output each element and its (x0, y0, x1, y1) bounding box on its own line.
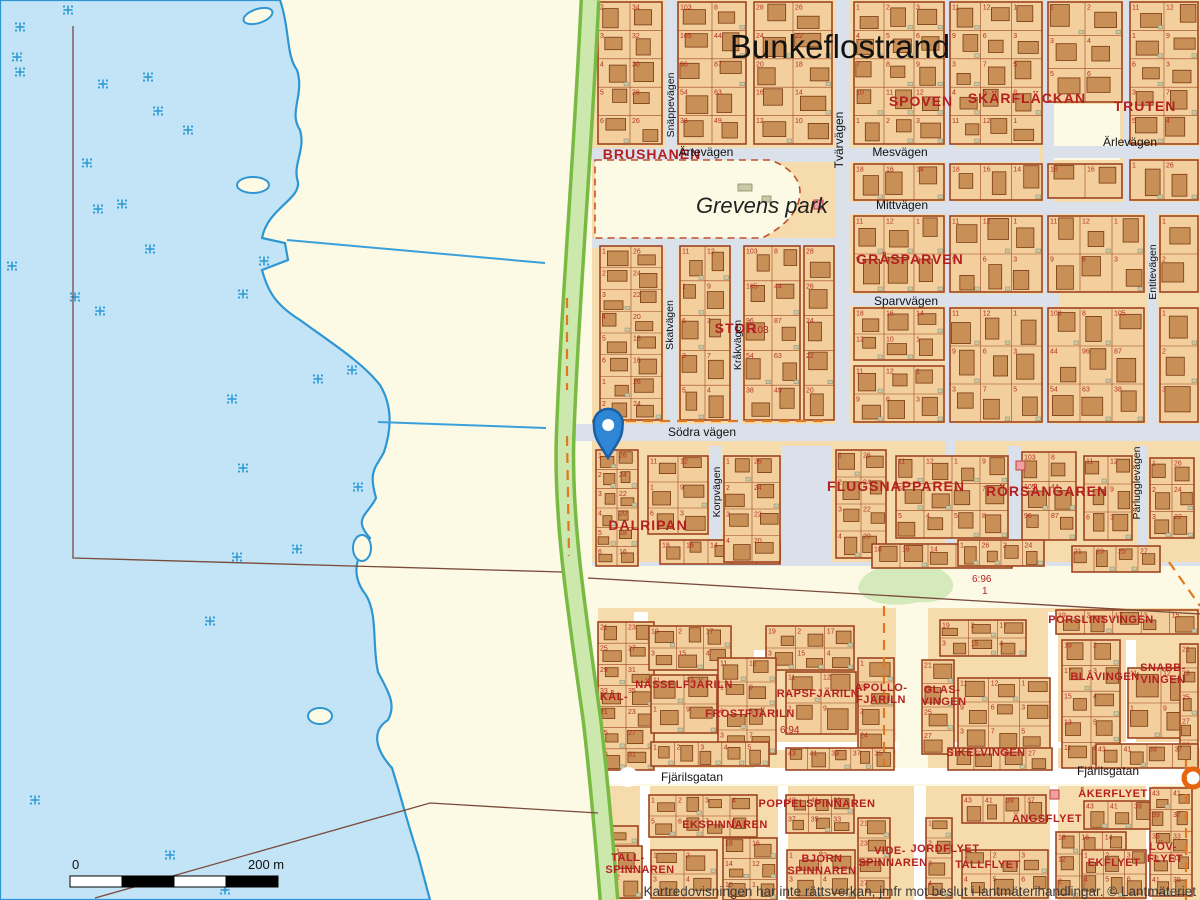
lot-number: 12 (707, 249, 715, 256)
lot-number: 35 (1152, 834, 1160, 841)
lot-number: 3 (653, 877, 657, 884)
house (1118, 492, 1130, 509)
house (656, 656, 672, 665)
lot-number: 26 (619, 453, 627, 460)
house (810, 394, 823, 416)
block-label: RAPSFJÄRILN (777, 687, 860, 700)
lot-number: 1 (1050, 5, 1054, 12)
lot-number: 28 (806, 249, 814, 256)
shed (771, 874, 776, 878)
shed (763, 761, 768, 765)
cadastral-block: 11121963 (950, 216, 1042, 292)
lot-number: 4 (686, 877, 690, 884)
house (624, 881, 638, 896)
house (1143, 68, 1160, 79)
house (1087, 77, 1110, 92)
lot-number: 3 (707, 318, 711, 325)
house (921, 123, 941, 138)
lot-number: 12 (886, 369, 894, 376)
house (1059, 218, 1074, 239)
shed (625, 306, 630, 310)
block-label: SPINNAREN (605, 864, 674, 876)
lot-number: 3 (705, 798, 709, 805)
lot-number: 3 (700, 745, 704, 752)
cadastral-block: 2826242220 (804, 246, 834, 420)
house (860, 752, 869, 764)
lot-number: 3 (928, 861, 932, 868)
marsh-icon (353, 482, 363, 491)
house (1136, 41, 1158, 55)
shed (1005, 341, 1010, 345)
lot-number: 5 (747, 745, 751, 752)
cadastral-block: 181614 (950, 164, 1042, 200)
house (1028, 705, 1048, 718)
house (636, 322, 653, 331)
lot-number: 1 (916, 337, 920, 344)
scale-segment (226, 876, 278, 887)
lot-number: 105 (746, 283, 758, 290)
lot-number: 2 (600, 5, 604, 12)
lot-number: 4 (838, 534, 842, 541)
shed (1165, 805, 1170, 809)
lot-number: 63 (1082, 387, 1090, 394)
shed (1042, 869, 1047, 873)
block-label: FROSTFJÄRILN (705, 707, 795, 720)
lot-number: 14 (1013, 167, 1021, 174)
shed (1079, 30, 1084, 34)
house (784, 250, 797, 266)
lot-number: 9 (680, 485, 684, 492)
house (1126, 269, 1142, 286)
lot-number: 16 (983, 167, 991, 174)
shed (848, 643, 853, 647)
lot-number: 3 (600, 33, 604, 40)
lot-number: 9 (1110, 487, 1114, 494)
house (888, 401, 905, 419)
street-label: Fjärilsgatan (1077, 764, 1139, 778)
lot-number: 2 (677, 745, 681, 752)
lot-number: 1 (1162, 311, 1166, 318)
lot-number: 23 (628, 709, 636, 716)
lot-number: 6 (602, 357, 606, 364)
block-label: VIDE- (874, 845, 906, 857)
shed (975, 139, 980, 143)
house (810, 262, 830, 277)
house (609, 65, 626, 82)
lot-number: 1 (1130, 706, 1134, 713)
lot-number: 105 (680, 33, 692, 40)
lot-number: 6 (983, 33, 987, 40)
lot-number: 1 (916, 369, 920, 376)
house (989, 265, 1002, 289)
block-label: APOLLO- (855, 682, 908, 694)
shed (908, 82, 913, 86)
marsh-icon (153, 106, 163, 115)
house (717, 94, 732, 112)
house (709, 800, 722, 808)
house (1156, 493, 1170, 509)
marsh-icon (15, 22, 25, 31)
house (750, 750, 761, 764)
lot-number: 44 (774, 283, 782, 290)
house (1018, 41, 1038, 53)
house (924, 740, 942, 752)
lot-number: 7 (983, 387, 987, 394)
lot-number: 87 (1114, 349, 1122, 356)
lot-number: 6 (1082, 257, 1086, 264)
lot-number: 9 (952, 349, 956, 356)
lot-number: 26 (1174, 461, 1182, 468)
lot-number: 11 (650, 459, 657, 466)
block-label: GLAS- (924, 684, 961, 696)
scale-segment (174, 876, 226, 887)
lot-number: 21 (860, 821, 868, 828)
lot-number: 10 (795, 118, 803, 125)
lot-number: 7 (707, 353, 711, 360)
block-label: NÄSSELFJÄRILN (635, 678, 733, 691)
lot-number: 26 (1166, 163, 1174, 170)
lot-number: 7 (983, 61, 987, 68)
house (1017, 228, 1034, 248)
lot-number: 49 (774, 388, 782, 395)
cadastral-block: 234332430528626 (598, 2, 662, 144)
house (880, 546, 897, 561)
block-label: ÅKERFLYET (1078, 787, 1148, 800)
shed (794, 311, 799, 315)
lot-number: 37 (788, 817, 796, 824)
lot-number: 54 (746, 353, 754, 360)
house (1013, 270, 1029, 289)
shed (1158, 82, 1163, 86)
street-label: Mesvägen (872, 145, 927, 159)
lot-number: 4 (724, 745, 728, 752)
cadastral-block: 1112196337 (718, 658, 776, 754)
house (636, 39, 650, 55)
lot-number: 41 (810, 751, 818, 758)
house (836, 631, 851, 644)
map-canvas[interactable]: 2343324305286261038105449687546338492826… (0, 0, 1200, 900)
islet (237, 177, 269, 193)
lot-number: 5 (1105, 877, 1109, 884)
house (967, 730, 985, 746)
house (611, 358, 628, 371)
lot-number: 3 (1050, 38, 1054, 45)
shed (1158, 139, 1163, 143)
lot-number: 11 (898, 459, 905, 466)
lot-number: 1 (789, 853, 793, 860)
cadastral-block: 11121963 (1048, 216, 1144, 292)
house (999, 685, 1015, 697)
lot-number: 3 (1110, 515, 1114, 522)
lot-number: 1 (651, 798, 655, 805)
house (993, 356, 1007, 376)
shed (908, 355, 913, 359)
cadastral-block: 126 (1130, 160, 1198, 200)
cadastral-map[interactable]: 2343324305286261038105449687546338492826… (0, 0, 1200, 900)
lot-number: 37 (1027, 798, 1035, 805)
lot-number: 11 (788, 675, 795, 682)
lot-number: 6 (983, 349, 987, 356)
shed (1114, 661, 1119, 665)
lot-number: 14 (795, 90, 803, 97)
house (607, 342, 626, 353)
lot-number: 25 (924, 710, 932, 717)
street-label: Tvärvägen (832, 112, 846, 169)
block-label: SPINNAREN (787, 865, 856, 877)
cadastral-block: 126224322 (1150, 458, 1194, 538)
lot-number: 11 (856, 219, 863, 226)
lot-number: 16 (756, 90, 764, 97)
lot-number: 18 (1050, 167, 1058, 174)
lot-number: 12 (1110, 459, 1118, 466)
lot-number: 33 (1173, 834, 1181, 841)
lot-number: 3 (602, 292, 606, 299)
house (797, 16, 819, 28)
house (1088, 231, 1104, 246)
house (1082, 397, 1103, 415)
lot-number: 63 (774, 353, 782, 360)
house (1027, 552, 1038, 565)
house (636, 625, 649, 639)
lot-number: 4 (1093, 694, 1097, 701)
lot-number: 3 (1013, 33, 1017, 40)
marsh-icon (117, 199, 127, 208)
lot-number: 22 (619, 491, 627, 498)
shed (697, 832, 702, 836)
shed (1085, 686, 1090, 690)
lot-number: 2 (1087, 5, 1091, 12)
lot-number: 24 (754, 485, 762, 492)
shed (1036, 417, 1041, 421)
house (1001, 643, 1015, 654)
lot-number: 35 (874, 751, 882, 758)
lot-number: 4 (1084, 877, 1088, 884)
shed (725, 643, 730, 647)
shed (1192, 379, 1197, 383)
lot-number: 26 (863, 453, 871, 460)
shed (1155, 733, 1160, 737)
shed (826, 111, 831, 115)
house (640, 273, 657, 287)
house (989, 40, 1004, 52)
street-label: Entitevägen (1147, 244, 1159, 300)
house (1130, 752, 1143, 764)
house (1174, 38, 1195, 49)
lot-number: 30 (632, 61, 640, 68)
lot-number: 6 (1086, 515, 1090, 522)
house (860, 17, 878, 29)
shed (1020, 765, 1025, 769)
house (734, 545, 751, 561)
lot-number: 38 (746, 388, 754, 395)
lot-number: 3 (651, 651, 655, 658)
house (887, 344, 906, 355)
marsh-icon (12, 52, 22, 61)
shed (699, 415, 704, 419)
house (760, 513, 778, 524)
marsh-icon (232, 552, 242, 561)
lot-number: 1 (682, 283, 686, 290)
shed (975, 379, 980, 383)
street-label: Pärlugglevägen (1131, 446, 1143, 519)
lot-number: 17 (706, 629, 714, 636)
lot-number: 1 (598, 453, 602, 460)
lot-number: 8 (982, 513, 986, 520)
house (782, 327, 795, 340)
street-label: Kråkvägen (732, 320, 744, 370)
house (991, 119, 1007, 134)
lot-number: 87 (714, 61, 722, 68)
lot-number: 9 (952, 33, 956, 40)
lot-number: 35 (811, 817, 819, 824)
shed (1132, 567, 1137, 571)
house (780, 388, 794, 408)
lot-number: 9 (982, 459, 986, 466)
lot-number: 1 (916, 219, 920, 226)
lot-number: 23 (628, 625, 636, 632)
house (969, 710, 986, 723)
house (862, 405, 880, 419)
shed (1138, 417, 1143, 421)
lot-number: 22 (1174, 514, 1182, 521)
block-label: SPINNAREN (858, 857, 927, 869)
lot-number: 2 (726, 485, 730, 492)
lot-number: 18 (874, 547, 882, 554)
marsh-icon (95, 306, 105, 315)
house (598, 537, 609, 545)
marsh-icon (238, 289, 248, 298)
house (605, 37, 622, 50)
house (735, 459, 749, 472)
lot-number: 2 (797, 629, 801, 636)
block-label: KÅL- (600, 690, 628, 703)
lot-number: 39 (1149, 747, 1157, 754)
shed (741, 725, 746, 729)
lot-number: 6 (983, 257, 987, 264)
marsh-icon (70, 292, 80, 301)
lot-number: 2 (1093, 643, 1097, 650)
lot-number: 4 (823, 877, 827, 884)
shed (699, 311, 704, 315)
lot-number: 11 (1086, 459, 1093, 466)
lot-number: 16 (619, 549, 627, 556)
cadastral-block: 434139 (1084, 801, 1156, 829)
marsh-icon (347, 365, 357, 374)
shed (1126, 535, 1131, 539)
house (959, 513, 973, 528)
shed (1002, 533, 1007, 537)
house (1166, 357, 1184, 375)
lot-number: 26 (633, 249, 641, 256)
lot-number: 26 (806, 283, 814, 290)
house (604, 473, 615, 484)
shed (794, 345, 799, 349)
lot-number: 8 (1051, 455, 1055, 462)
lot-number: 103 (1024, 455, 1036, 462)
block-label: BLÅVINGEN (1070, 670, 1139, 683)
lot-number: 87 (774, 318, 782, 325)
shed (739, 761, 744, 765)
lot-number: 4 (726, 538, 730, 545)
lot-number: 11 (1064, 745, 1071, 752)
lot-number: 2 (1162, 257, 1166, 264)
house (746, 359, 760, 379)
lot-number: 23 (1096, 549, 1104, 556)
lot-number: 96 (1082, 349, 1090, 356)
house (1117, 459, 1130, 472)
lot-number: 1 (1013, 311, 1017, 318)
lot-number: 19 (768, 629, 776, 636)
lot-number: 39 (1152, 812, 1160, 819)
marsh-icon (63, 5, 73, 14)
lot-number: 11 (682, 249, 689, 256)
lot-number: 22 (806, 353, 814, 360)
house (1095, 12, 1117, 27)
shed (746, 478, 751, 482)
house (1121, 391, 1136, 411)
shed (975, 54, 980, 58)
house (867, 821, 885, 834)
block-label: VINGEN (921, 696, 966, 708)
shed (1106, 417, 1111, 421)
shed (1036, 111, 1041, 115)
lot-number: 24 (806, 318, 814, 325)
house (1092, 46, 1110, 61)
shed (1141, 763, 1146, 767)
lot-number: 12 (856, 337, 864, 344)
lot-number: 4 (600, 61, 604, 68)
lot-number: 22 (754, 512, 762, 519)
lot-number: 9 (1163, 706, 1167, 713)
house (863, 319, 879, 332)
house (1130, 711, 1147, 727)
lot-number: 3 (720, 733, 724, 740)
lot-number: 3 (1166, 61, 1170, 68)
shed (1110, 567, 1115, 571)
shed (975, 25, 980, 29)
house (957, 8, 973, 27)
lot-number: 1 (650, 485, 654, 492)
cadastral-block: 126224322420 (836, 450, 886, 558)
house (606, 119, 626, 131)
house (640, 291, 656, 302)
lot-number: 4 (964, 877, 968, 884)
lot-number: 3 (726, 512, 730, 519)
lot-number: 22 (863, 507, 871, 514)
shed (1005, 417, 1010, 421)
house (928, 518, 943, 530)
lot-number: 15 (1172, 613, 1180, 620)
house (1123, 219, 1138, 242)
house (643, 130, 658, 142)
cadastral-block: 103810544968754633849 (678, 2, 746, 144)
house (708, 360, 723, 378)
marsh-icon (165, 850, 175, 859)
house (833, 658, 850, 668)
shed (946, 833, 951, 837)
house (1073, 699, 1086, 711)
shed (611, 542, 616, 546)
lot-number: 11 (856, 369, 863, 376)
lot-number: 1 (1021, 681, 1025, 688)
house (656, 824, 672, 834)
lot-number: 27 (924, 733, 932, 740)
house (985, 318, 999, 339)
marsh-icon (313, 374, 323, 383)
house (844, 509, 859, 521)
shed (699, 276, 704, 280)
shed (770, 701, 775, 705)
